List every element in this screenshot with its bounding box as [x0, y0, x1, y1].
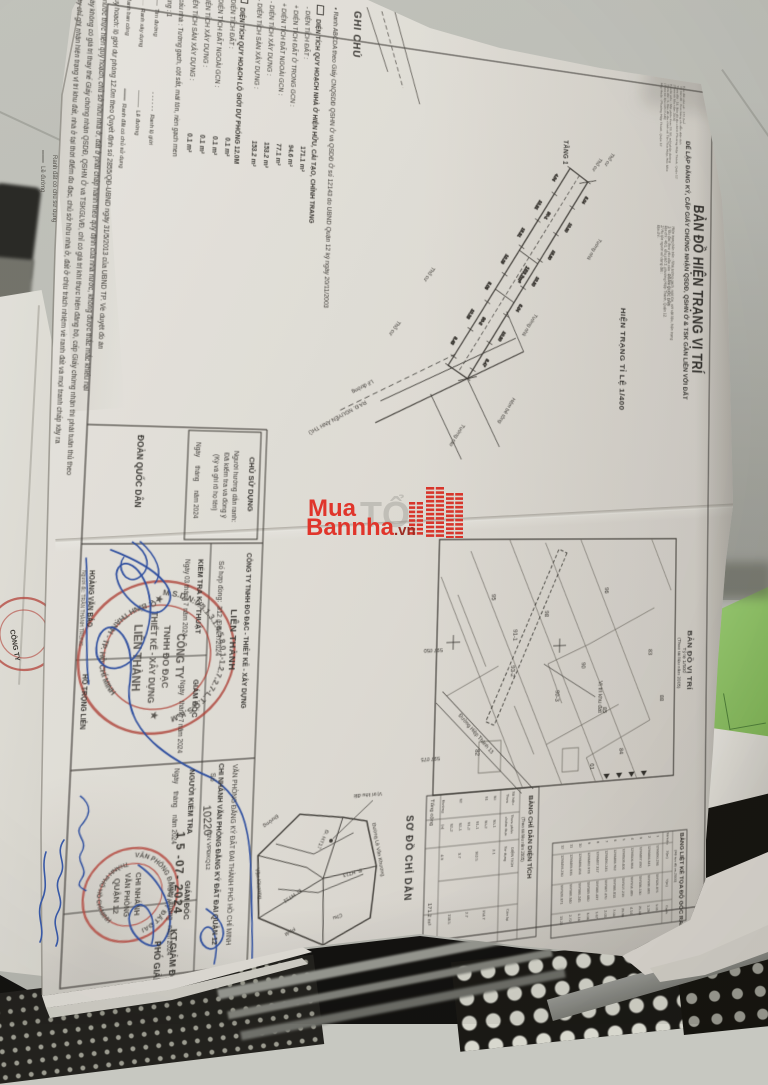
- svg-text:29.86: 29.86: [621, 908, 625, 918]
- svg-text:597038.083: 597038.083: [647, 875, 651, 895]
- svg-text:Thổ cư: Thổ cư: [387, 319, 403, 338]
- svg-text:162.5: 162.5: [474, 851, 478, 861]
- svg-text:4.14: 4.14: [629, 907, 633, 915]
- svg-text:4.04: 4.04: [551, 173, 559, 183]
- svg-text:92-2: 92-2: [449, 823, 453, 831]
- svg-text:1293487.090: 1293487.090: [639, 846, 643, 868]
- svg-text:Hẻm bê tông: Hẻm bê tông: [496, 396, 516, 425]
- svg-text:Văn Khương: Văn Khương: [254, 868, 263, 901]
- svg-text:15.30: 15.30: [547, 249, 557, 261]
- svg-text:Còn lại: Còn lại: [505, 909, 509, 922]
- svg-text:Tổng cộng: Tổng cộng: [428, 799, 436, 826]
- svg-text:597036.130: 597036.130: [638, 876, 642, 896]
- svg-text:Y(m): Y(m): [665, 879, 669, 887]
- svg-text:4.9: 4.9: [440, 854, 444, 860]
- svg-text:Thửa phần: Thửa phần: [510, 814, 514, 834]
- svg-text:1: 1: [656, 835, 660, 837]
- svg-text:158.5: 158.5: [447, 914, 451, 925]
- svg-text:597026.871: 597026.871: [655, 874, 659, 894]
- svg-text:90: 90: [493, 796, 497, 801]
- svg-text:3.06: 3.06: [586, 912, 590, 920]
- svg-text:3.7: 3.7: [457, 853, 461, 859]
- svg-text:1293486.056: 1293486.056: [578, 853, 582, 875]
- svg-text:Đ. HT17: Đ. HT17: [316, 829, 330, 850]
- svg-text:1293490.245: 1293490.245: [604, 850, 608, 872]
- svg-text:88: 88: [658, 695, 663, 702]
- svg-text:91: 91: [484, 796, 488, 801]
- svg-text:Tường nhà: Tường nhà: [520, 312, 538, 337]
- svg-text:7.00: 7.00: [612, 909, 616, 917]
- svg-text:Thổ cư: Thổ cư: [603, 151, 616, 168]
- svg-text:5.04: 5.04: [581, 196, 589, 206]
- svg-text:Số hiệu: Số hiệu: [666, 832, 670, 845]
- svg-text:2: 2: [647, 836, 651, 838]
- svg-text:Cạnh: Cạnh: [665, 905, 669, 914]
- svg-text:Đường: Đường: [262, 813, 280, 829]
- svg-text:90-2: 90-2: [484, 820, 488, 828]
- svg-text:3: 3: [639, 837, 643, 839]
- svg-text:Số hiệu: Số hiệu: [511, 791, 515, 805]
- svg-text:Thổ cư: Thổ cư: [590, 156, 603, 173]
- svg-text:X(m): X(m): [665, 851, 669, 859]
- svg-text:597069.680: 597069.680: [586, 882, 590, 902]
- svg-text:597 075: 597 075: [421, 754, 440, 762]
- svg-text:90-3: 90-3: [553, 690, 559, 702]
- svg-text:96: 96: [603, 587, 609, 593]
- svg-text:Tường nhà: Tường nhà: [585, 237, 602, 261]
- svg-text:1293487.317: 1293487.317: [595, 851, 599, 873]
- svg-text:1293490.236: 1293490.236: [655, 845, 659, 866]
- svg-text:84: 84: [618, 748, 624, 755]
- svg-text:597067.470: 597067.470: [604, 880, 608, 900]
- svg-text:8.45: 8.45: [449, 336, 458, 347]
- svg-text:4: 4: [630, 838, 634, 840]
- svg-text:2.05: 2.05: [603, 910, 607, 918]
- svg-text:THIẾT KẾ - XÂY DỰNG: THIẾT KẾ - XÂY DỰNG: [145, 611, 161, 704]
- svg-text:10.28: 10.28: [465, 308, 475, 321]
- svg-text:90: 90: [580, 662, 586, 669]
- svg-text:RA Đ. NGUYỄN ẢNH THỦ: RA Đ. NGUYỄN ẢNH THỦ: [307, 398, 368, 436]
- svg-text:1.67: 1.67: [595, 911, 599, 919]
- svg-text:93-2: 93-2: [509, 665, 515, 677]
- svg-text:(a): (a): [440, 824, 444, 829]
- svg-text:92-1: 92-1: [458, 823, 462, 831]
- svg-text:597068.340: 597068.340: [568, 884, 572, 904]
- svg-text:9: 9: [587, 842, 591, 845]
- svg-text:15.31: 15.31: [516, 227, 526, 239]
- svg-text:82: 82: [473, 749, 479, 756]
- svg-text:6: 6: [613, 839, 617, 842]
- svg-text:91-2: 91-2: [466, 822, 470, 830]
- svg-text:154.7: 154.7: [481, 910, 485, 921]
- svg-text:TNHH ĐO ĐẠC: TNHH ĐO ĐẠC: [159, 625, 173, 689]
- svg-text:61: 61: [588, 763, 594, 770]
- svg-text:1.01: 1.01: [655, 904, 659, 912]
- svg-text:2.7: 2.7: [464, 912, 468, 918]
- svg-text:98: 98: [543, 611, 549, 618]
- svg-text:597017.219: 597017.219: [621, 878, 625, 898]
- svg-text:1293482.978: 1293482.978: [587, 852, 591, 874]
- svg-text:95: 95: [490, 594, 496, 601]
- svg-text:(Theo tài liệu năm 2005): (Theo tài liệu năm 2005): [520, 817, 525, 863]
- svg-text:91-1: 91-1: [511, 629, 517, 641]
- svg-text:Vị trí khu đất: Vị trí khu đất: [596, 681, 602, 714]
- svg-text:7: 7: [605, 840, 609, 843]
- svg-text:90-1: 90-1: [492, 820, 496, 828]
- svg-text:CÔNG TY: CÔNG TY: [173, 633, 188, 679]
- svg-text:10.30: 10.30: [530, 276, 540, 288]
- svg-text:597028.871: 597028.871: [559, 885, 563, 905]
- svg-text:10.31: 10.31: [533, 199, 543, 211]
- svg-text:2.1: 2.1: [492, 849, 496, 855]
- svg-text:5.03: 5.03: [484, 281, 493, 291]
- svg-text:10.30: 10.30: [563, 222, 572, 234]
- svg-text:91-1: 91-1: [475, 821, 479, 829]
- svg-text:Sử dụng: Sử dụng: [503, 846, 507, 862]
- svg-text:Đ. HT13: Đ. HT13: [342, 867, 362, 878]
- svg-text:83: 83: [647, 649, 653, 655]
- svg-text:10.29: 10.29: [500, 253, 510, 265]
- svg-text:597068.437: 597068.437: [595, 881, 599, 901]
- svg-text:13.22: 13.22: [559, 916, 563, 926]
- svg-text:597 050: 597 050: [424, 646, 443, 653]
- svg-text:(Hệ tọa độ vn-2000): (Hệ tọa độ vn-2000): [673, 850, 677, 883]
- svg-text:0.16: 0.16: [577, 913, 581, 921]
- svg-text:92: 92: [459, 798, 463, 803]
- svg-text:1293508.406: 1293508.406: [621, 848, 625, 870]
- svg-text:597014.489: 597014.489: [630, 877, 634, 897]
- svg-text:★: ★: [149, 711, 160, 721]
- svg-text:1.29: 1.29: [646, 905, 650, 913]
- svg-text:DIỆN TÍCH: DIỆN TÍCH: [510, 847, 515, 868]
- svg-text:171.2 m²: 171.2 m²: [425, 903, 432, 927]
- svg-text:12: 12: [560, 845, 564, 850]
- svg-text:Vị trí khu đất: Vị trí khu đất: [353, 791, 382, 799]
- svg-text:1293493.230: 1293493.230: [560, 855, 564, 877]
- svg-text:5: 5: [622, 838, 626, 841]
- svg-text:Lề đường: Lề đường: [350, 378, 374, 395]
- svg-text:597066.245: 597066.245: [577, 883, 581, 903]
- svg-text:10.30: 10.30: [497, 330, 507, 343]
- svg-text:Phát: Phát: [283, 926, 296, 938]
- svg-text:2.72: 2.72: [568, 915, 572, 923]
- svg-text:1293489.935: 1293489.935: [569, 854, 573, 876]
- svg-text:90-1: 90-1: [543, 211, 552, 221]
- svg-text:1293506.984: 1293506.984: [630, 847, 634, 869]
- svg-text:BẢNG CHỈ DẪN DIỆN TÍCH: BẢNG CHỈ DẪN DIỆN TÍCH: [525, 795, 535, 879]
- svg-text:1293488.762: 1293488.762: [613, 849, 617, 871]
- svg-text:5.04: 5.04: [515, 303, 524, 313]
- svg-text:90-2: 90-2: [478, 316, 487, 327]
- svg-text:Chu: Chu: [332, 912, 343, 921]
- svg-text:chiếm thực: chiếm thực: [504, 817, 508, 837]
- svg-text:Đường: Đường: [441, 800, 445, 813]
- svg-text:1293466.841: 1293466.841: [647, 845, 651, 867]
- svg-text:597066.814: 597066.814: [612, 879, 616, 899]
- svg-text:8.47: 8.47: [481, 358, 490, 369]
- svg-text:11: 11: [569, 844, 573, 848]
- svg-text:Thửa: Thửa: [505, 794, 509, 804]
- svg-text:25.04: 25.04: [638, 906, 642, 916]
- svg-text:10: 10: [578, 843, 582, 848]
- svg-text:Thổ cư: Thổ cư: [421, 265, 436, 284]
- svg-text:8: 8: [596, 841, 600, 844]
